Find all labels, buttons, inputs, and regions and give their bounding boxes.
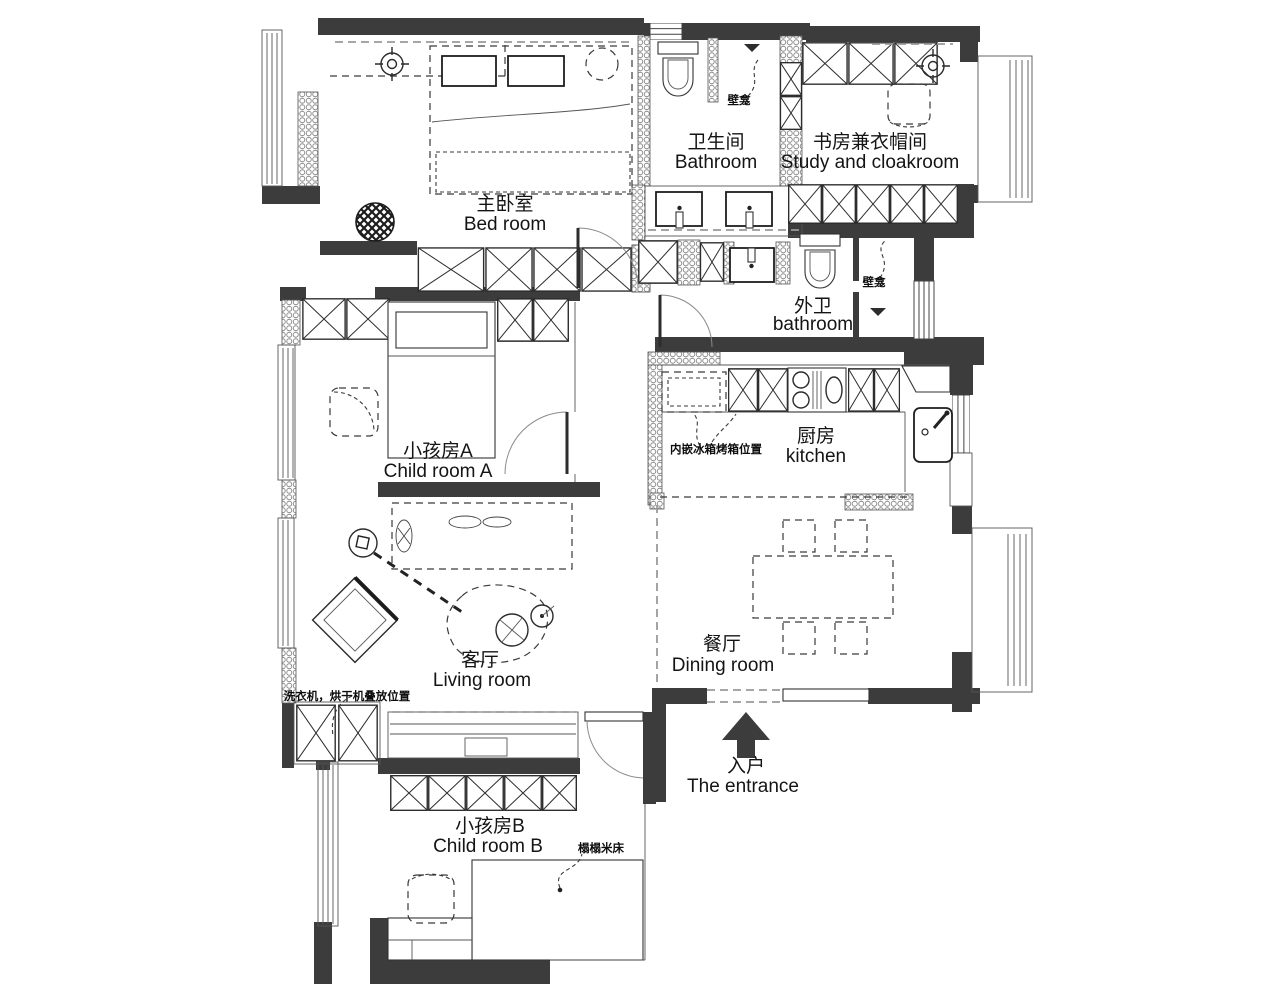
- wardrobe: [391, 776, 427, 811]
- niche-side-label: 壁龛: [863, 275, 886, 289]
- child-room-b: 小孩房B Child room B 榻榻米床: [388, 776, 645, 960]
- plant-icon: [396, 516, 511, 552]
- window-bench: [388, 712, 578, 758]
- stove-icon: [788, 368, 846, 412]
- dining-room: 餐厅 Dining room: [657, 505, 893, 686]
- study-label-zh: 书房兼衣帽间: [813, 131, 927, 153]
- basin-icon: [730, 248, 774, 282]
- wardrobe: [303, 299, 345, 339]
- leader-line: [748, 60, 758, 96]
- entrance-label-zh: 入户: [727, 755, 765, 777]
- wardrobe: [803, 43, 847, 84]
- armchair: [313, 578, 398, 663]
- second-bathroom-label-en: bathroom: [773, 314, 853, 335]
- floor-plan-canvas: 主卧室 Bed room 壁龛 卫生间 Bathroom: [0, 0, 1280, 997]
- round-table: [356, 203, 394, 241]
- kitchen-label-en: kitchen: [786, 446, 846, 467]
- niche-top-label: 壁龛: [728, 93, 751, 107]
- entrance-arrow-icon: [722, 712, 770, 758]
- pillow: [442, 56, 496, 86]
- living-room-label-zh: 客厅: [461, 649, 499, 671]
- leader-line: [694, 414, 736, 446]
- study-label-en: Study and cloakroom: [781, 152, 960, 173]
- dining-room-label-en: Dining room: [672, 655, 774, 676]
- study-cloakroom: 书房兼衣帽间 Study and cloakroom: [781, 43, 960, 223]
- bed: [388, 302, 495, 458]
- kitchen: 内嵌冰箱烤箱位置 厨房 kitchen: [660, 365, 952, 497]
- dining-chair: [835, 622, 867, 654]
- child-room-a: 小孩房A Child room A: [303, 299, 575, 482]
- desk: [388, 918, 472, 960]
- bathroom-top: 壁龛 卫生间 Bathroom: [645, 42, 802, 236]
- wardrobe: [418, 248, 483, 291]
- second-bathroom: 壁龛 外卫 bathroom: [639, 234, 886, 335]
- floor-plan: 主卧室 Bed room 壁龛 卫生间 Bathroom: [0, 0, 1280, 997]
- projection-line: [374, 553, 462, 612]
- projector-icon: [349, 529, 377, 557]
- wardrobe: [789, 185, 822, 223]
- desk-chair: [408, 874, 454, 923]
- living-room: 客厅 Living room 洗衣机，烘干机叠放位置: [284, 503, 578, 764]
- bedside-table: [330, 388, 378, 436]
- basin-icon: [726, 192, 772, 228]
- dining-chair: [783, 520, 815, 552]
- kitchen-label-zh: 厨房: [797, 425, 835, 447]
- dining-chair: [835, 520, 867, 552]
- desk-chair: [888, 84, 930, 127]
- tatami-bed: [472, 860, 643, 960]
- tatami-bed-label: 榻榻米床: [578, 841, 624, 855]
- child-room-a-label-zh: 小孩房A: [403, 440, 473, 462]
- child-room-b-label-zh: 小孩房B: [455, 815, 525, 837]
- toilet-icon: [658, 42, 698, 96]
- entrance-label-en: The entrance: [687, 776, 799, 797]
- leader-line: [880, 240, 886, 278]
- dining-table: [753, 556, 893, 618]
- toilet-icon: [800, 234, 840, 288]
- bedroom-label-en: Bed room: [464, 214, 546, 235]
- hanging-lamp: [586, 48, 618, 80]
- entrance: 入户 The entrance: [687, 712, 799, 797]
- dining-chair: [783, 622, 815, 654]
- child-room-b-label-en: Child room B: [433, 836, 543, 857]
- floor-drain-icon: [744, 44, 760, 52]
- bedroom-label-zh: 主卧室: [476, 193, 533, 215]
- basin-icon: [656, 192, 702, 228]
- media-cabinet: [392, 503, 572, 569]
- washer-dryer-label: 洗衣机，烘干机叠放位置: [284, 689, 411, 703]
- bathroom-label-en: Bathroom: [675, 152, 757, 173]
- bathroom-label-zh: 卫生间: [687, 131, 744, 153]
- living-room-label-en: Living room: [433, 670, 531, 691]
- child-room-a-label-en: Child room A: [384, 461, 493, 482]
- floor-drain-icon: [870, 308, 886, 316]
- dining-room-label-zh: 餐厅: [703, 633, 741, 655]
- sink-icon: [914, 408, 952, 462]
- washer-closet: [294, 702, 380, 764]
- entrance-door: [783, 689, 869, 701]
- pillow: [508, 56, 564, 86]
- fridge-oven-label: 内嵌冰箱烤箱位置: [670, 442, 762, 456]
- corner-shelf: [902, 366, 950, 392]
